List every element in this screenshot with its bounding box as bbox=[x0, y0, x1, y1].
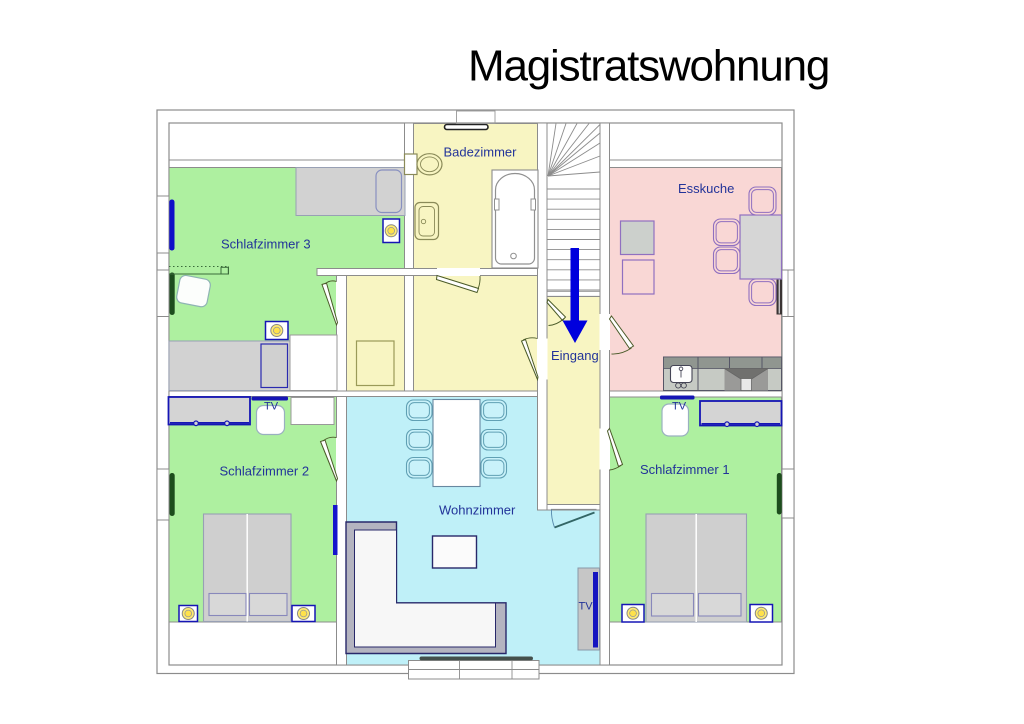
svg-text:TV: TV bbox=[579, 601, 594, 613]
svg-text:Schlafzimmer 3: Schlafzimmer 3 bbox=[221, 237, 311, 252]
svg-text:Badezimmer: Badezimmer bbox=[444, 145, 518, 160]
svg-text:Schlafzimmer 1: Schlafzimmer 1 bbox=[640, 462, 730, 477]
svg-text:Esskuche: Esskuche bbox=[678, 181, 734, 196]
svg-text:TV: TV bbox=[672, 401, 687, 413]
svg-text:Magistratswohnung: Magistratswohnung bbox=[468, 42, 829, 91]
svg-text:Schlafzimmer 2: Schlafzimmer 2 bbox=[220, 464, 310, 479]
svg-text:Eingang: Eingang bbox=[551, 348, 599, 363]
svg-text:Wohnzimmer: Wohnzimmer bbox=[439, 503, 516, 518]
svg-text:TV: TV bbox=[264, 401, 279, 413]
